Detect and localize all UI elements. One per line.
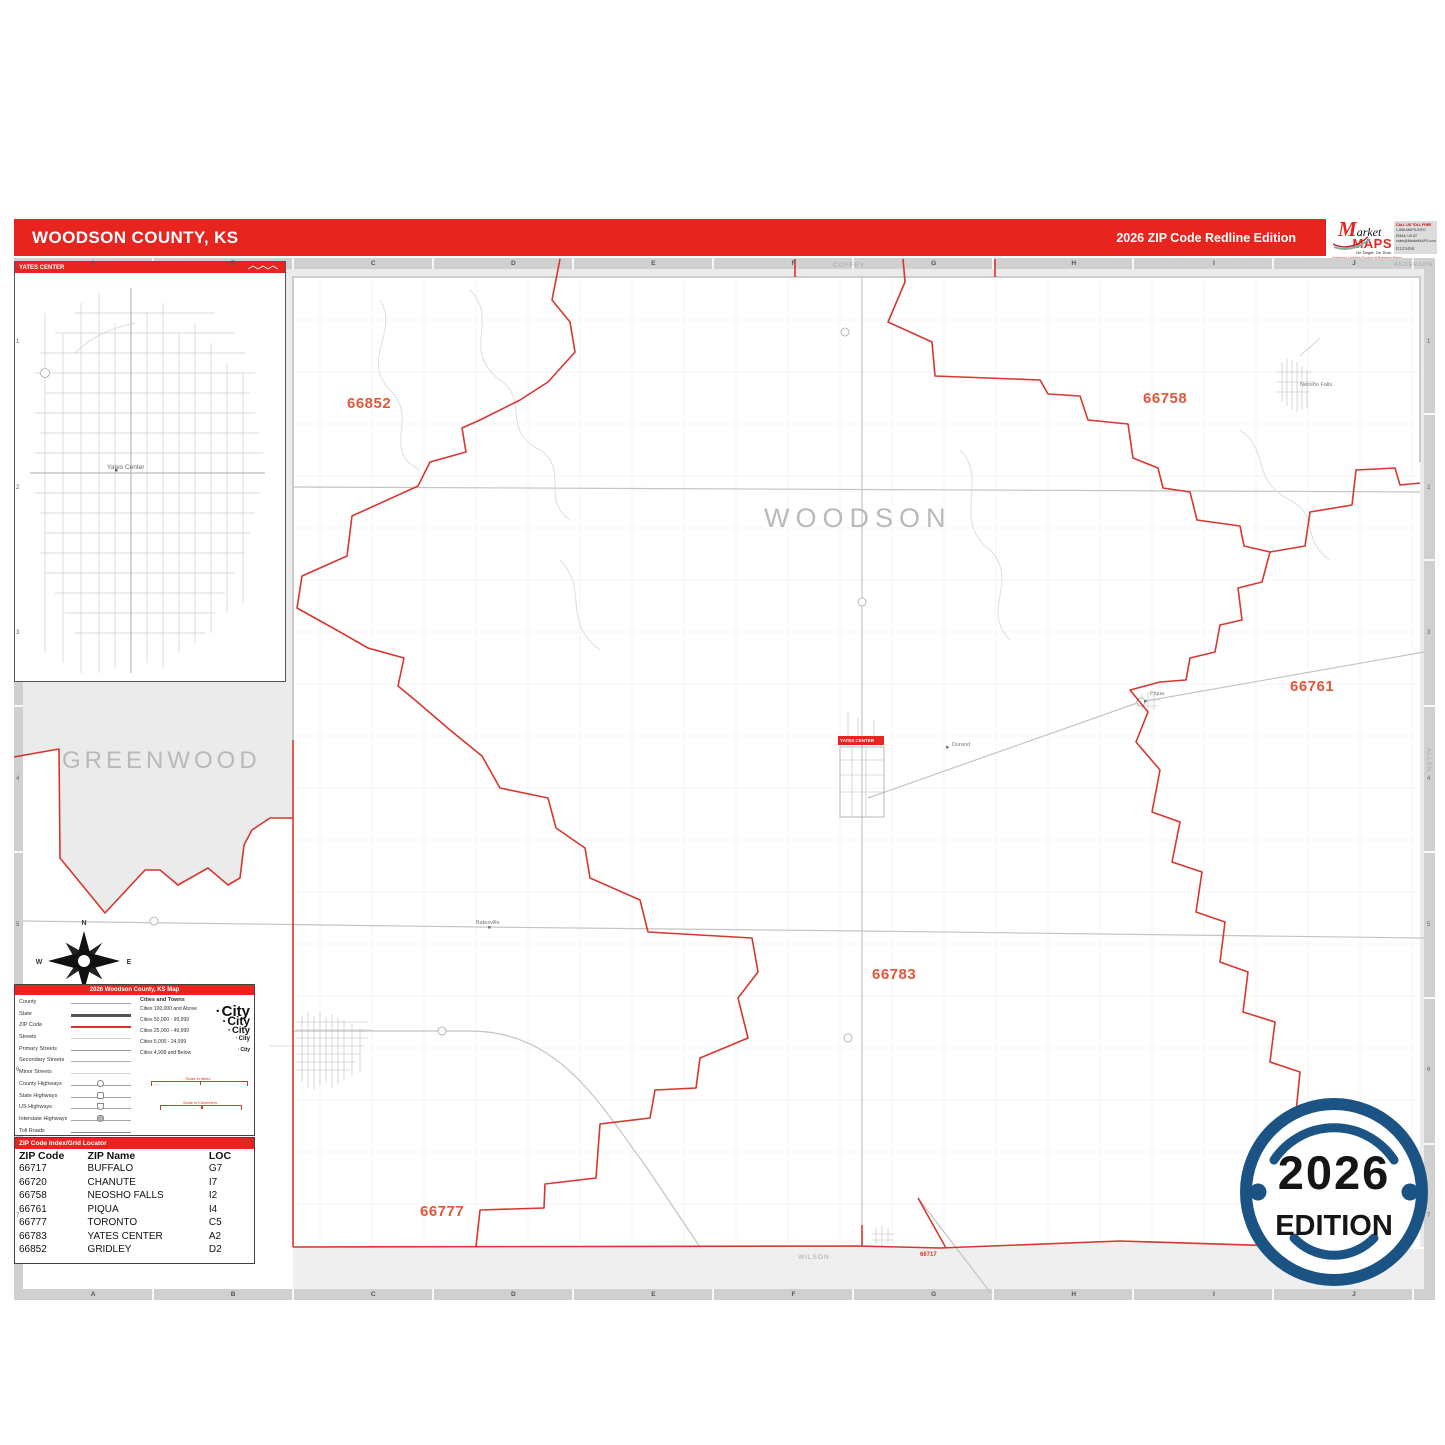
city-class-row: Cities 25,000 - 49,999 City (140, 1025, 252, 1036)
badge-year: 2026 (1278, 1146, 1391, 1199)
grid-letter: E (651, 260, 655, 267)
legend-line-sample (71, 1026, 131, 1028)
city-callout: YATES CENTER (838, 736, 884, 745)
edition-label: 2026 ZIP Code Redline Edition (1116, 231, 1296, 245)
grid-letter: B (231, 1291, 236, 1298)
table-row: 66761PIQUAI4 (15, 1203, 254, 1217)
zip-code-label: 66783 (872, 966, 916, 983)
city-class-label: Cities 4,999 and Below (140, 1050, 191, 1056)
table-cell: PIQUA (84, 1203, 205, 1217)
highway-shield-icon (97, 1080, 104, 1087)
table-cell: I2 (205, 1189, 254, 1203)
grid-row-number: 4 (1427, 776, 1430, 782)
zip-code-label: 66758 (1143, 390, 1187, 407)
table-cell: GRIDLEY (84, 1243, 205, 1257)
legend-row: US Highways (15, 1102, 135, 1114)
neighbor-label-west: GREENWOOD (62, 747, 261, 775)
grid-letter: C (371, 1291, 376, 1298)
table-cell: 66777 (15, 1216, 84, 1230)
legend-row-label: Secondary Streets (19, 1057, 64, 1063)
grid-row-number: 7 (16, 1213, 19, 1219)
legend-row: ZIP Code (15, 1020, 135, 1032)
legend-row-label: County (19, 999, 36, 1005)
table-header-cell: ZIP Code (15, 1149, 84, 1162)
zip-code-label: 66852 (347, 395, 391, 412)
legend-row: State Highways (15, 1091, 135, 1103)
town-label-batesville: Batesville (476, 920, 500, 926)
grid-letter: A (91, 1291, 96, 1298)
compass-n: N (81, 920, 86, 927)
grid-letter: J (1352, 260, 1356, 267)
city-class-row: Cities 100,000 and Above City (140, 1003, 252, 1014)
header-bar: WOODSON COUNTY, KS 2026 ZIP Code Redline… (14, 219, 1326, 256)
table-cell: YATES CENTER (84, 1230, 205, 1244)
grid-row-number: 4 (16, 776, 19, 782)
legend-row: Toll Roads (15, 1126, 135, 1138)
city-class-sample: City (228, 1025, 250, 1036)
legend-panel: 2026 Woodson County, KS Map County State… (14, 984, 255, 1136)
zip-code-label: 66777 (420, 1203, 464, 1220)
grid-row-number: 5 (16, 922, 19, 928)
town-street-grids (270, 338, 1320, 1246)
legend-line-sample (71, 1038, 131, 1039)
table-cell: 66758 (15, 1189, 84, 1203)
grid-letter: E (651, 1291, 655, 1298)
town-label-durand: Durand (952, 742, 970, 748)
inset-title: YATES CENTER (19, 265, 64, 271)
grid-letter: C (371, 260, 376, 267)
inset-scale-icon (247, 264, 281, 271)
table-cell: 66852 (15, 1243, 84, 1257)
table-cell: NEOSHO FALLS (84, 1189, 205, 1203)
grid-letter: D (511, 1291, 516, 1298)
grid-letter: G (931, 260, 936, 267)
table-header-cell: LOC (205, 1149, 254, 1162)
table-cell: D2 (205, 1243, 254, 1257)
grid-row-number: 2 (16, 485, 19, 491)
legend-row: Secondary Streets (15, 1055, 135, 1067)
legend-row-label: Toll Roads (19, 1128, 45, 1134)
table-cell: 66761 (15, 1203, 84, 1217)
city-class-label: Cities 50,000 - 99,999 (140, 1017, 189, 1023)
neighbor-label-east: ALLEN (1425, 748, 1431, 772)
town-label-piqua: Piqua (1150, 691, 1164, 697)
table-cell: 66717 (15, 1162, 84, 1176)
grid-letter: G (931, 1291, 936, 1298)
legend-row-label: Streets (19, 1034, 36, 1040)
grid-letter: F (792, 260, 796, 267)
grid-letter: B (231, 260, 236, 267)
grid-row-number: 6 (1427, 1067, 1430, 1073)
rivers (378, 290, 1330, 650)
legend-row-label: State Highways (19, 1093, 57, 1099)
grid-row-number: 1 (16, 339, 19, 345)
legend-row: Minor Streets (15, 1067, 135, 1079)
grid-row-number: 5 (1427, 922, 1430, 928)
legend-row: State (15, 1009, 135, 1021)
table-cell: G7 (205, 1162, 254, 1176)
legend-row: Primary Streets (15, 1044, 135, 1056)
grid-row-number: 3 (1427, 630, 1430, 636)
table-cell: A2 (205, 1230, 254, 1244)
contact-line: sales@MarketMAPS.com (1396, 239, 1435, 244)
city-class-label: Cities 100,000 and Above (140, 1006, 197, 1012)
table-row: 66717BUFFALOG7 (15, 1162, 254, 1176)
legend-line-rows: County State ZIP Code Streets Primary St… (15, 997, 135, 1137)
product-code: D123456 (1396, 246, 1435, 253)
zip-index-panel: ZIP Code Index/Grid Locator ZIP Code ZIP… (14, 1137, 255, 1264)
table-cell: BUFFALO (84, 1162, 205, 1176)
inset-city-label: Yates Center (107, 464, 144, 471)
legend-line-sample (71, 1132, 131, 1133)
grid-row-number: 1 (1427, 339, 1430, 345)
grid-letter: F (792, 1291, 796, 1298)
grid-letter: H (1071, 1291, 1076, 1298)
town-label-neosho-falls: Neosho Falls (1300, 382, 1332, 388)
city-callout-label: YATES CENTER (840, 738, 874, 743)
scale-miles-bar (151, 1081, 248, 1086)
legend-row-label: ZIP Code (19, 1022, 42, 1028)
legend-row-label: State (19, 1011, 32, 1017)
legend-row-label: Interstate Highways (19, 1116, 67, 1122)
table-cell: C5 (205, 1216, 254, 1230)
legend-row-label: Primary Streets (19, 1046, 57, 1052)
table-cell: I4 (205, 1203, 254, 1217)
table-header-cell: ZIP Name (84, 1149, 205, 1162)
grid-letter: I (1213, 1291, 1215, 1298)
logo-swoosh-icon (1332, 231, 1372, 253)
legend-row: County (15, 997, 135, 1009)
city-class-label: Cities 5,000 - 24,999 (140, 1039, 186, 1045)
city-class-sample: City (236, 1036, 250, 1042)
logo-contact-box: CALL US TOLL FREE 1-888-MAPS-INFO EMAIL … (1394, 221, 1437, 254)
legend-line-sample (71, 1061, 131, 1062)
grid-row-number: 3 (16, 630, 19, 636)
city-class-row: Cities 4,999 and Below City (140, 1047, 252, 1058)
highway-shield-icon (97, 1115, 104, 1122)
grid-letter: D (511, 260, 516, 267)
grid-letter: J (1352, 1291, 1356, 1298)
inset-title-bar: YATES CENTER (15, 262, 285, 273)
table-cell: TORONTO (84, 1216, 205, 1230)
zip-index-title: ZIP Code Index/Grid Locator (15, 1138, 254, 1149)
badge-word: EDITION (1275, 1210, 1393, 1242)
inset-map: YATES CENTER Yates Center (14, 261, 286, 682)
neighbor-label-north: COFFEY (833, 262, 865, 269)
grid-letter: A (91, 260, 96, 267)
table-cell: CHANUTE (84, 1176, 205, 1190)
table-cell: 66783 (15, 1230, 84, 1244)
legend-row: County Highways (15, 1079, 135, 1091)
table-row: 66852GRIDLEYD2 (15, 1243, 254, 1257)
city-class-row: Cities 50,000 - 99,999 City (140, 1014, 252, 1025)
legend-row: Streets (15, 1032, 135, 1044)
city-class-row: Cities 5,000 - 24,999 City (140, 1036, 252, 1047)
legend-line-sample (71, 1014, 131, 1017)
grid-row-number: 7 (1427, 1213, 1430, 1219)
neighbor-label-south: WILSON (798, 1254, 830, 1261)
legend-row-label: County Highways (19, 1081, 62, 1087)
county-label: WOODSON (764, 503, 952, 534)
zip-index-table: ZIP Code ZIP Name LOC 66717BUFFALOG76672… (15, 1149, 254, 1257)
highway-shield-icon (97, 1092, 104, 1099)
legend-line-sample (71, 1050, 131, 1052)
grid-letter: I (1213, 260, 1215, 267)
neighbor-label-northeast: ANDERSON (1394, 262, 1433, 268)
scale-km-bar (160, 1105, 242, 1110)
table-cell: 66720 (15, 1176, 84, 1190)
zip-code-label-small: 66717 (920, 1252, 937, 1258)
table-row: 66720CHANUTEI7 (15, 1176, 254, 1190)
legend-line-sample (71, 1003, 131, 1004)
table-cell: I7 (205, 1176, 254, 1190)
legend-title: 2026 Woodson County, KS Map (15, 985, 254, 995)
city-class-sample: City (238, 1047, 250, 1053)
table-row: 66783YATES CENTERA2 (15, 1230, 254, 1244)
compass-e: E (127, 959, 132, 966)
table-header-row: ZIP Code ZIP Name LOC (15, 1149, 254, 1162)
grid-row-number: 2 (1427, 485, 1430, 491)
compass-w: W (36, 959, 43, 966)
inset-street-grid (15, 273, 284, 680)
legend-line-sample (71, 1073, 131, 1074)
grid-letter: H (1071, 260, 1076, 267)
legend-row: Interstate Highways (15, 1114, 135, 1126)
city-class-label: Cities 25,000 - 49,999 (140, 1028, 189, 1034)
table-row: 66777TORONTOC5 (15, 1216, 254, 1230)
legend-row-label: Minor Streets (19, 1069, 52, 1075)
table-row: 66758NEOSHO FALLSI2 (15, 1189, 254, 1203)
zip-code-label: 66761 (1290, 678, 1334, 695)
legend-cities: Cities and Towns Cities 100,000 and Abov… (140, 997, 252, 1058)
grid-row-number: 6 (16, 1067, 19, 1073)
legend-row-label: US Highways (19, 1104, 52, 1110)
edition-badge: 2026 EDITION (1234, 1092, 1434, 1292)
marketmaps-logo: Market MAPS On Target. On Time. America'… (1332, 219, 1392, 259)
page-title: WOODSON COUNTY, KS (32, 228, 239, 248)
